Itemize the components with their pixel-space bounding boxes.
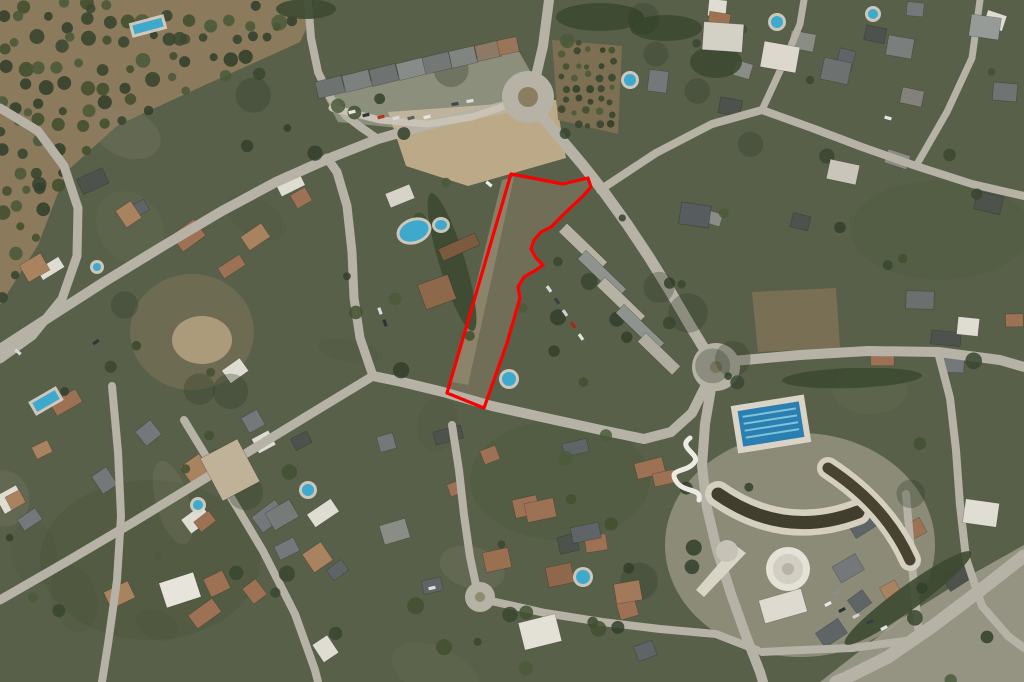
olive-tree [233,35,242,44]
waterpark-round-building-hub [782,563,794,575]
olive-tree [181,87,190,96]
orchard-tree [558,105,566,113]
tree [270,587,280,597]
tree [898,254,908,264]
tree-canopy [685,78,711,104]
olive-tree [52,179,65,192]
swimming-pool [576,570,590,584]
building [702,22,744,53]
tree-canopy [668,293,707,332]
tree [519,661,533,675]
swimming-pool [624,74,636,86]
olive-tree [245,21,255,31]
dirt-field-east [752,288,840,352]
tree [105,361,117,373]
building [906,291,935,310]
orchard-tree [572,85,580,93]
orchard-tree [563,86,570,93]
tree [560,34,574,48]
orchard-tree [610,58,617,65]
tree [24,108,33,117]
tree [560,128,571,139]
olive-tree [248,31,258,41]
olive-tree [39,80,54,95]
tree [664,277,675,288]
olive-tree [144,106,154,116]
tree [155,553,163,561]
tree [724,372,732,380]
orchard-tree [596,75,604,83]
tree [553,257,563,267]
olive-tree [0,43,11,54]
olive-tree [74,59,83,68]
building [962,499,999,527]
tree [397,127,410,140]
olive-tree [77,120,89,132]
olive-tree [65,32,75,42]
orchard-tree [610,85,615,90]
tree [6,534,14,542]
olive-tree [98,95,112,109]
tree [619,214,626,221]
tree [55,39,68,52]
tree [943,149,956,162]
orchard-tree [576,40,582,46]
olive-tree [125,93,136,104]
tree [389,293,402,306]
tree [558,451,573,466]
olive-tree [81,81,95,95]
tree [282,464,297,479]
olive-tree [126,65,134,73]
green-belt-northeast [850,180,1024,280]
olive-tree [210,53,218,61]
orchard-tree [596,120,604,128]
olive-tree [104,16,117,29]
tree [343,272,351,280]
waterpark-service-disc [716,540,738,562]
olive-tree [99,118,109,128]
tree [307,145,322,160]
swimming-pool [93,263,101,271]
tree [519,606,533,620]
olive-tree [82,146,91,155]
tree-canopy [213,374,249,410]
tree [965,352,982,369]
tree [719,208,729,218]
olive-tree [223,15,234,26]
olive-tree [81,31,96,46]
tree [283,124,291,132]
orchard-tree [587,99,593,105]
house [906,2,924,17]
tree [988,68,995,75]
tree [605,517,618,530]
olive-tree [199,33,208,42]
orchard-tree [607,99,613,105]
olive-tree [204,19,217,32]
tree [206,368,215,377]
tree [331,99,345,113]
olive-tree [22,186,30,194]
orchard-tree [608,74,616,82]
tree [393,362,409,378]
tree [677,280,686,289]
olive-tree [29,29,44,44]
orchard-tree [559,74,565,80]
olive-tree [32,234,40,242]
tree [329,627,342,640]
olive-tree [169,52,177,60]
house [647,69,669,93]
olive-tree [11,271,19,279]
olive-tree [13,11,24,22]
tree [441,178,450,187]
orchard-tree [574,47,581,54]
olive-tree [81,12,93,24]
tree-canopy [111,291,138,318]
olive-tree [96,83,109,96]
tree [692,39,701,48]
building [992,82,1017,102]
vacant-lot-left-dirt [172,316,232,364]
tree [981,631,994,644]
swimming-pool [302,484,314,496]
aerial-photo-figure [0,0,1024,682]
olive-tree [32,61,45,74]
house [1006,314,1024,327]
olive-tree [179,56,190,67]
orchard-tree [584,64,589,69]
olive-tree [33,99,43,109]
orchard-tree [576,95,583,102]
olive-tree [145,72,160,87]
orchard-tree [597,85,604,92]
tree [279,566,295,582]
tree [548,345,560,357]
olive-tree [52,118,65,131]
tree [52,604,65,617]
olive-tree [101,0,111,10]
tree [132,341,142,351]
tree [28,592,38,602]
olive-tree [239,50,253,64]
orchard-tree [585,70,591,76]
olive-tree [2,186,12,196]
olive-tree [83,104,96,117]
orchard-tree [600,47,606,53]
tree-canopy [184,373,215,404]
tree [914,437,927,450]
orchard-tree [571,110,576,115]
roundabout-south-island [475,592,485,602]
tree [744,483,753,492]
tree-canopy [738,132,763,157]
olive-tree [20,78,31,89]
building [679,202,712,228]
olive-tree [15,168,27,180]
swimming-pool [771,16,783,28]
swimming-pool [435,220,447,230]
orchard-tree [586,85,594,93]
olive-tree [9,247,22,260]
orchard-tree [563,63,570,70]
tree [663,317,676,330]
tree [971,189,982,200]
orchard-tree [563,97,569,103]
tree [916,582,927,593]
olive-tree [0,60,13,73]
orchard-tree [585,46,591,52]
building [613,580,642,604]
tree [907,610,923,626]
olive-tree [57,76,71,90]
tree [685,559,700,574]
tree-canopy [236,78,271,113]
olive-tree [224,52,238,66]
orchard-tree [598,96,604,102]
orchard-tree [585,123,590,128]
olive-tree [168,73,176,81]
tree-canopy [897,480,925,508]
orchard-tree [558,50,565,57]
olive-tree [44,12,53,21]
orchard-tree [575,120,583,128]
tree [271,15,287,31]
tree [590,621,606,637]
orchard-tree [607,120,615,128]
orchard-tree [596,108,603,115]
swimming-pool [193,500,203,510]
swimming-pool [868,9,878,19]
tree [600,429,612,441]
tree [621,331,632,342]
tree [623,563,634,574]
olive-tree [17,149,27,159]
swimming-pool [502,372,516,386]
building [885,35,914,59]
olive-tree [136,53,151,68]
tree-canopy [628,3,659,34]
tree [806,76,814,84]
orchard-tree [582,106,590,114]
olive-tree [16,222,24,230]
tree [60,387,69,396]
tree [730,375,744,389]
tree [497,540,505,548]
tree [349,306,363,320]
tree [474,638,482,646]
tree-canopy [643,42,668,67]
olive-tree [19,62,34,77]
tree [253,68,265,80]
tree [241,140,253,152]
olive-tree [117,116,126,125]
tree [436,639,452,655]
building [969,14,1002,40]
tree [502,607,518,623]
tree [229,566,243,580]
tree [834,222,846,234]
olive-tree [183,14,196,27]
orchard-tree [609,112,616,119]
tree [579,377,589,387]
tree [407,597,424,614]
olive-tree [10,38,19,47]
tree [204,430,214,440]
olive-tree [263,33,272,42]
tree [86,4,96,14]
olive-tree [11,200,23,212]
roundabout-north-island [518,87,538,107]
tree [686,540,702,556]
orchard-tree [599,63,605,69]
tree [181,464,190,473]
tree [173,32,187,46]
tree [220,70,232,82]
olive-tree [36,202,50,216]
tree [611,621,624,634]
tree [883,260,893,270]
tree-canopy [715,341,751,377]
olive-tree [251,1,261,11]
tree [566,494,577,505]
orchard-tree [608,47,615,54]
orchard-tree [576,63,581,68]
olive-tree [119,83,130,94]
tree [374,93,385,104]
olive-tree [50,62,62,74]
orchard-tree [571,75,578,82]
olive-tree [118,36,129,47]
tree [34,182,46,194]
olive-tree [102,35,111,44]
olive-tree [62,22,73,33]
olive-tree [97,64,109,76]
olive-tree [59,107,67,115]
house [957,317,980,337]
satellite-image [0,0,1024,682]
